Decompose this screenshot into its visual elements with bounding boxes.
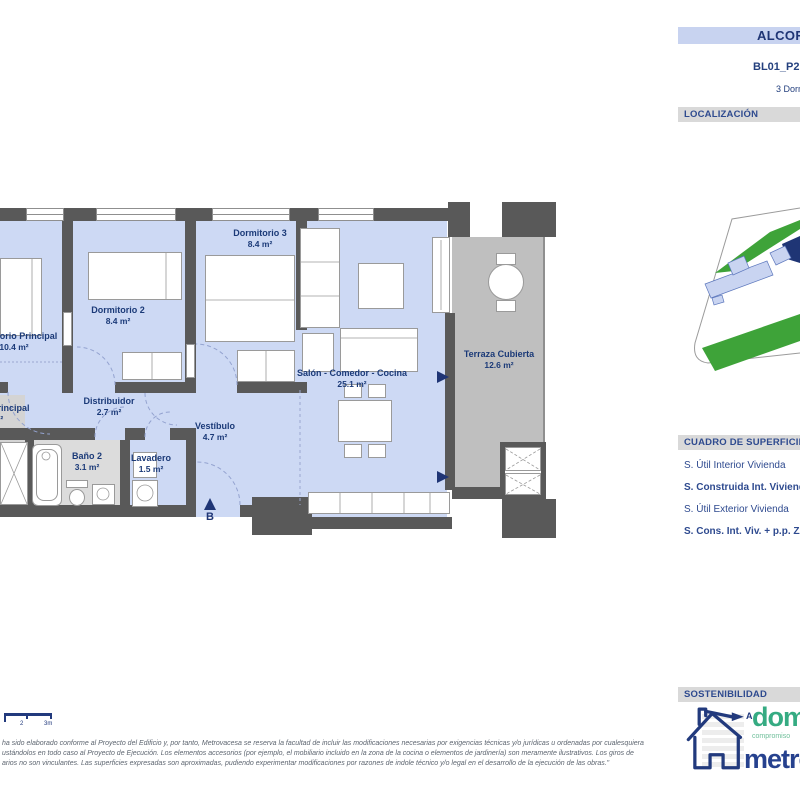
wall-segment (0, 505, 196, 517)
project-title: ALCORA (757, 28, 800, 43)
door-leaf (63, 312, 72, 346)
wall-segment (252, 497, 312, 535)
terrace-table-icon (488, 264, 524, 300)
room-label-bano-2: Baño 2 3.1 m² (60, 451, 114, 473)
chair-icon (368, 444, 386, 458)
energy-bar (702, 730, 744, 735)
wall-segment (64, 208, 96, 221)
surface-row: S. Construida Int. Vivienda (684, 482, 800, 493)
room-label-dormitorio-2: Dormitorio 2 8.4 m² (78, 305, 158, 327)
scale-label: 2 (20, 721, 23, 727)
window (212, 208, 290, 221)
room-label-terraza: Terraza Cubierta 12.6 m² (456, 349, 542, 371)
wall-segment (30, 428, 95, 440)
armchair-icon (302, 333, 334, 372)
disclaimer-line: ha sido elaborado conforme al Proyecto d… (2, 739, 722, 749)
wall-segment (176, 208, 212, 221)
legal-disclaimer: ha sido elaborado conforme al Proyecto d… (2, 739, 722, 769)
wall-segment (452, 487, 502, 499)
wall-segment (62, 221, 73, 393)
dining-table-icon (338, 400, 392, 442)
unit-code: BL01_P2 (753, 61, 799, 73)
site-boundary (695, 208, 800, 363)
wall-segment (502, 499, 556, 538)
surface-row: S. Útil Exterior Vivienda (684, 504, 789, 515)
highlighted-building (782, 236, 800, 263)
terrace-chair-icon (496, 300, 516, 312)
toilet-icon (69, 489, 85, 506)
building-cluster (728, 256, 749, 275)
domum-logo: domum (752, 702, 800, 733)
unit-type: 3 Dormitorios (776, 84, 800, 94)
wall-segment (125, 428, 145, 440)
wall-segment (502, 202, 556, 237)
building-cluster (705, 261, 773, 298)
sink-icon (92, 484, 115, 505)
building-cluster (770, 246, 791, 265)
wall-segment (290, 208, 318, 221)
toilet-icon (66, 480, 88, 488)
wall-segment (445, 313, 455, 490)
surface-row: S. Cons. Int. Viv. + p.p. ZZCC (684, 526, 800, 537)
bed-icon (0, 258, 42, 336)
washer-icon (132, 480, 158, 507)
green-area (702, 314, 800, 371)
disclaimer-line: arios no son vinculantes. Las superficie… (2, 759, 722, 769)
door-leaf (186, 344, 195, 378)
section-header-superficies: CUADRO DE SUPERFICIES (678, 435, 800, 450)
wall-segment (115, 382, 185, 393)
room-label-lavadero: Lavadero 1.5 m² (122, 453, 180, 475)
wall-segment (0, 208, 26, 221)
section-header-localizacion: LOCALIZACIÓN (678, 107, 800, 122)
room-label-dormitorio-3: Dormitorio 3 8.4 m² (218, 228, 302, 250)
wardrobe-icon (237, 350, 295, 382)
scale-bar-tick (4, 713, 6, 722)
kitchen-counter-icon (300, 228, 340, 328)
green-area (715, 220, 800, 273)
room-label-bano-principal: Baño Principal m² (0, 403, 30, 425)
title-bar: ALCORA (678, 27, 800, 44)
scale-label: 3m (44, 721, 52, 727)
disclaimer-line: ustándolos en todo caso al Proyecto de E… (2, 749, 722, 759)
room-label-dormitorio-principal: Dormitorio Principal 10.4 m² (0, 331, 64, 353)
section-header-sostenibilidad: SOSTENIBILIDAD (678, 687, 800, 702)
wall-segment (374, 208, 448, 221)
location-map (688, 205, 800, 385)
wall-segment (312, 517, 452, 529)
shower-icon (0, 442, 28, 505)
bed-icon (88, 252, 182, 300)
energy-bar (702, 714, 744, 719)
chair-icon (344, 444, 362, 458)
sofa-icon (340, 328, 418, 372)
closet-icon (505, 447, 541, 471)
wall-segment (120, 440, 130, 512)
entry-marker: B (202, 511, 218, 523)
rug-icon (358, 263, 404, 309)
metrovacesa-logo: metrovacesa (744, 744, 800, 775)
domum-logo-subtitle: compromiso (752, 733, 790, 740)
sliding-door-icon (432, 237, 450, 313)
scale-bar-tick (50, 713, 52, 719)
window (318, 208, 374, 221)
surface-row: S. Útil Interior Vivienda (684, 460, 786, 471)
scale-bar: 2 3m (0, 708, 70, 732)
floor-plan: Dormitorio Principal 10.4 m² Dormitorio … (0, 0, 560, 560)
scale-bar-tick (26, 713, 28, 719)
wall-segment (448, 202, 470, 237)
room-label-vestibulo: Vestíbulo 4.7 m² (183, 421, 247, 443)
room-label-salon: Salón - Comedor - Cocina 25.1 m² (292, 368, 412, 390)
room-label-distribuidor: Distribuidor 2.7 m² (72, 396, 146, 418)
window (26, 208, 64, 221)
wall-segment (186, 440, 196, 512)
wall-segment (0, 382, 8, 393)
building-cluster (712, 295, 724, 305)
wardrobe-icon (122, 352, 182, 380)
kitchen-counter-icon (308, 492, 450, 514)
closet-icon (505, 473, 541, 495)
energy-bar (702, 722, 744, 727)
bathtub-icon (36, 449, 58, 501)
window (96, 208, 176, 221)
floorplan-sheet: { "header": { "project_title": "ALCORA",… (0, 0, 800, 800)
scale-bar-line (4, 713, 52, 716)
bed-icon (205, 255, 295, 342)
